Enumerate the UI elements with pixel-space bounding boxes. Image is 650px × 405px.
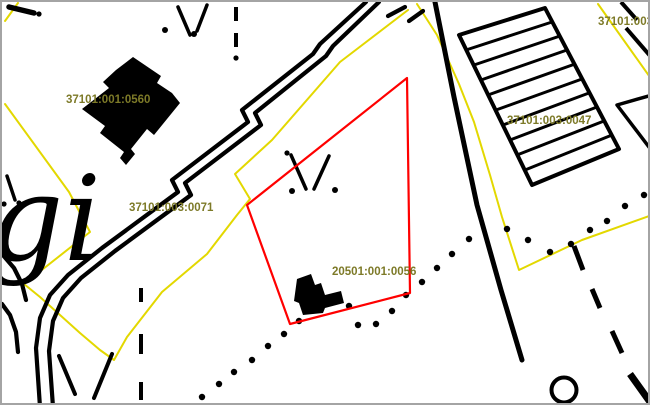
- vegetation-symbol-dot: [332, 187, 338, 193]
- topleft-road-stub: [9, 7, 34, 13]
- vegetation-symbol-dot: [162, 27, 168, 33]
- building-hatched-northeast: [459, 8, 619, 185]
- parcel-label: 37101:003:0071: [129, 202, 214, 214]
- cadastral-map-view[interactable]: 37101:001:0560 37101:003:0071 37101:003:…: [0, 0, 650, 405]
- dashed-diagonal-right: [612, 331, 622, 353]
- dotted-footpath: [199, 192, 647, 400]
- well-circle-symbol: [552, 378, 577, 403]
- dashed-vertical-top-dot: [233, 55, 238, 60]
- place-name-fragment: gi: [2, 150, 101, 288]
- selected-parcel-label: 20501:001:0056: [332, 266, 416, 278]
- parcel-label-truncated: 37101:003: [598, 16, 650, 28]
- parcel-label: 37101:001:0560: [66, 94, 150, 106]
- dashed-diagonal-right: [574, 246, 583, 270]
- parcel-label: 37101:003:0047: [507, 115, 591, 127]
- selected-parcel-boundary[interactable]: [247, 78, 410, 324]
- vegetation-symbol-dot: [289, 188, 295, 194]
- dashed-diagonal-right: [630, 374, 650, 402]
- building-l-shaped-selected-parcel: [294, 274, 344, 315]
- building-solid-northwest: [82, 57, 180, 165]
- vegetation-symbol-dot: [284, 150, 289, 155]
- map-canvas[interactable]: 37101:001:0560 37101:003:0071 37101:003:…: [2, 2, 650, 405]
- vegetation-symbol-dot: [36, 11, 41, 16]
- road-curve-west-2: [2, 304, 18, 352]
- dashed-diagonal-right: [592, 289, 600, 308]
- apex-dash-2: [409, 11, 423, 21]
